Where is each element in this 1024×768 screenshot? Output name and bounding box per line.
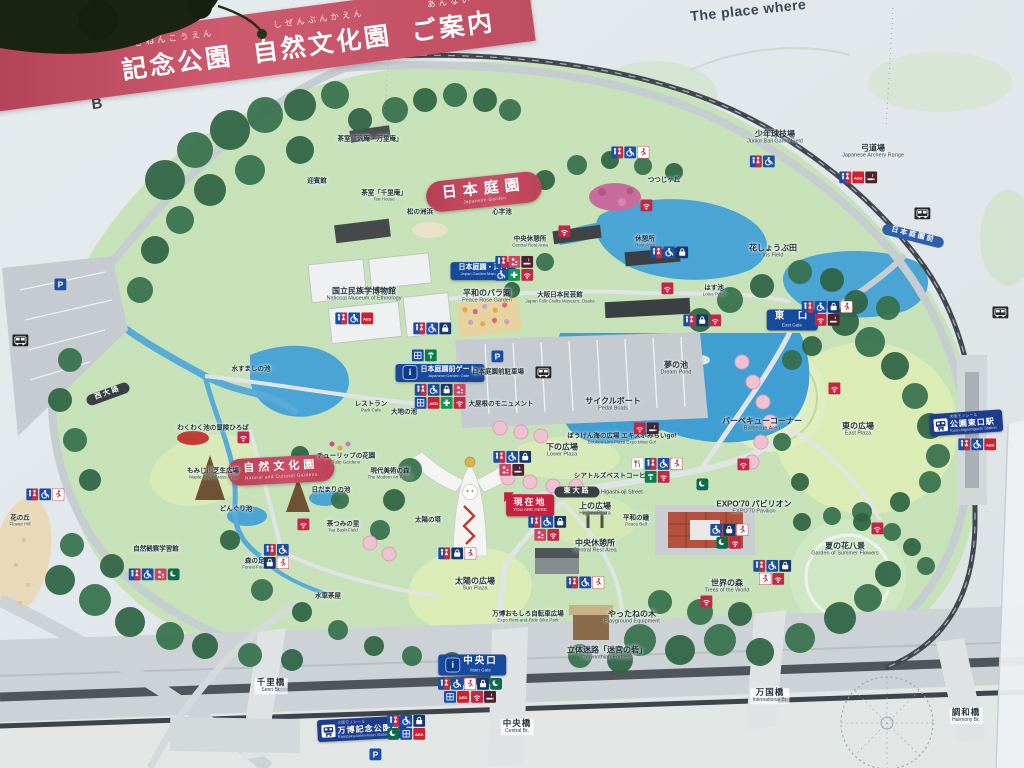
central-bridge-label: 中央橋Central Br. <box>501 719 534 735</box>
overhanging-tree-photo <box>0 0 300 70</box>
wifi-icon <box>236 430 249 443</box>
locker-icon <box>444 691 456 703</box>
nishi-oji-street-label: 西大路 <box>85 381 131 407</box>
wc-icon <box>26 488 38 500</box>
wc-icon <box>128 568 140 580</box>
wifi-icon <box>700 595 712 607</box>
east-plaza-label: 東の広場East Plaza <box>842 421 874 437</box>
run-icon <box>637 146 649 158</box>
wifi-icon <box>661 282 673 294</box>
sun-plaza-label: 太陽の広場Sun Plaza <box>455 576 495 592</box>
bag-icon <box>554 515 566 527</box>
smoke-icon <box>865 171 877 183</box>
svg-text:AED: AED <box>429 401 438 406</box>
wifi-icon <box>521 269 533 281</box>
hc-icon <box>971 438 983 450</box>
hc-icon <box>277 543 289 555</box>
hc-icon <box>814 300 826 312</box>
facility-icon-cluster: AED <box>838 170 878 183</box>
wc-icon <box>414 383 426 395</box>
moon-icon <box>716 537 728 549</box>
tea-bush-field-label: 茶つみの里Tea Bush Field <box>327 521 360 534</box>
bus-icon <box>991 305 1008 318</box>
bus-icon <box>913 206 930 219</box>
mizusumashi-pond-label: 水すましの池 <box>232 365 271 372</box>
international-bridge-label: 万国橋International Br. <box>750 688 789 704</box>
harmony-bridge-label: 調和橋Harmony Br. <box>950 708 983 724</box>
p-icon: P <box>491 350 503 362</box>
bus-icon <box>992 306 1008 318</box>
smoke-icon <box>647 422 659 434</box>
nature-observation-label: 自然観察学習館 <box>133 545 179 552</box>
peace-bell-label: 平和の鐘Peace Bell <box>623 515 649 528</box>
bag-icon <box>828 300 840 312</box>
hc-icon <box>495 269 507 281</box>
higher-plaza-label: 上の広場Higher Plaza <box>579 501 611 517</box>
aed-icon: AED <box>984 438 996 450</box>
hc-icon <box>766 559 778 571</box>
bus-icon <box>535 366 551 378</box>
jg-central-rest-label: 中央休憩所Central Rest Area <box>512 236 548 249</box>
facility-icon-cluster: AED <box>386 714 426 740</box>
facility-icon-cluster <box>494 255 534 281</box>
flower-hill-label: 花の丘Flower Hill <box>9 515 30 528</box>
map-labels-layer: BCD日本庭園Japanese Garden自然文化園Natural and C… <box>0 0 1024 768</box>
cross-icon <box>441 397 453 409</box>
hc-icon <box>506 450 518 462</box>
svg-text:AED: AED <box>986 442 995 447</box>
wc-icon <box>749 155 761 167</box>
phone-icon <box>644 471 656 483</box>
wc-icon <box>263 543 275 555</box>
smoke-icon <box>484 691 496 703</box>
locker-icon <box>414 397 426 409</box>
bus-icon <box>914 207 930 219</box>
ethnology-museum-label: 国立民族学博物館National Museum of Ethnology <box>327 286 402 302</box>
hc-icon <box>710 523 722 535</box>
p-icon: P <box>53 277 66 290</box>
bag-icon <box>519 450 531 462</box>
run-icon <box>671 457 683 469</box>
wc-icon <box>438 677 450 689</box>
aed-icon: AED <box>457 691 469 703</box>
bike-park-label: 万博おもしろ自転車広場Expo Rent-and-Ride Bike Park <box>492 611 564 624</box>
bag-icon <box>696 314 708 326</box>
facility-icon-cluster <box>128 567 181 580</box>
hc-icon <box>141 568 153 580</box>
p-icon: P <box>490 349 503 362</box>
hc-icon <box>663 246 675 258</box>
bus-icon <box>534 365 551 378</box>
roof-monument-label: 大屋根のモニュメント <box>469 400 534 407</box>
wifi-icon <box>709 314 721 326</box>
facility-icon-cluster <box>682 313 722 326</box>
you-are-here-badge: 現在地YOU ARE HERE <box>506 494 554 516</box>
aed-icon: AED <box>852 171 864 183</box>
aed-icon: AED <box>361 312 373 324</box>
bag-icon <box>451 547 463 559</box>
p-icon: P <box>369 748 381 760</box>
svg-text:P: P <box>494 351 500 361</box>
wifi-icon <box>828 382 840 394</box>
run-icon <box>52 488 64 500</box>
facility-icon-cluster <box>709 523 749 549</box>
facility-icon-cluster <box>263 543 289 569</box>
modern-art-forest-label: 現代美術の森The Modern Art Forest <box>367 468 412 481</box>
wc-icon <box>413 322 425 334</box>
wc-icon <box>438 547 450 559</box>
aed-icon: AED <box>413 728 425 740</box>
monorail-icon <box>321 725 334 738</box>
aed-icon: AED <box>427 397 439 409</box>
facility-icon-cluster: AED <box>957 437 997 450</box>
junior-ball-field-label: 少年球技場Junior Ball Game Field <box>747 129 803 145</box>
hc-icon <box>624 146 636 158</box>
smoke-icon <box>828 314 840 326</box>
labyrinth-label: 立体迷路「迷宮の砦」Labyrinthian Fortress <box>567 645 647 661</box>
sunny-pond-label: 日だまりの池 <box>312 486 351 493</box>
wc-icon <box>839 171 851 183</box>
wc-icon <box>753 559 765 571</box>
peace-rose-garden-label: 平和のバラ園Peace Rose Garden <box>462 288 512 304</box>
wifi-icon <box>454 397 466 409</box>
locker-icon <box>411 349 423 361</box>
hc-icon <box>426 322 438 334</box>
lotus-pond-label: はす池Lotus Pond <box>703 285 726 298</box>
p-icon: P <box>368 747 381 760</box>
pedal-boats-label: サイクルボートPedal Boats <box>585 396 641 412</box>
info-icon: i <box>446 658 459 671</box>
wifi-icon <box>736 457 749 470</box>
smoke-icon <box>521 255 533 267</box>
yattane-tree-label: やったねの木Playground Equipment <box>604 609 660 625</box>
bag-icon <box>779 559 791 571</box>
wifi-icon <box>730 537 742 549</box>
facility-icon-cluster <box>25 487 65 500</box>
cross-icon <box>508 269 520 281</box>
maple-river-grass-label: もみじ川芝生広場Maple River Grass Area <box>187 468 239 481</box>
svg-text:AED: AED <box>363 316 372 321</box>
wifi-icon <box>548 529 560 541</box>
nurse-icon <box>454 383 466 395</box>
wifi-icon <box>558 225 570 237</box>
svg-text:P: P <box>57 279 63 289</box>
moon-icon <box>387 728 399 740</box>
bouken-umi-plaza-label: ぼうけん海の広場 エキスポみらいgo!Bouken-Umi Plaza Expo… <box>567 433 676 446</box>
food-icon <box>631 457 643 469</box>
hc-icon <box>39 488 51 500</box>
wifi-icon <box>737 458 749 470</box>
bus-icon <box>12 334 28 346</box>
run-icon <box>592 576 604 588</box>
p-icon: P <box>54 278 66 290</box>
barbecue-area-label: バーベキューコーナーBarbecue Area <box>722 416 802 432</box>
wifi-icon <box>296 517 309 530</box>
wifi-icon <box>871 522 883 534</box>
wifi-icon <box>658 471 670 483</box>
wc-icon <box>644 457 656 469</box>
central-rest-area-label: 中央休憩所Central Rest Area <box>573 538 616 554</box>
dream-pond-label: 夢の池Dream Pond <box>661 360 692 376</box>
wc-icon <box>387 714 399 726</box>
acorn-pond-label: どんぐり池 <box>220 505 253 512</box>
jg-parking-label: 日本庭園前駐車場 <box>472 368 524 375</box>
wc-icon <box>611 146 623 158</box>
run-icon <box>464 547 476 559</box>
facility-icon-cluster <box>633 421 659 434</box>
wc-icon <box>528 515 540 527</box>
folk-crafts-museum-label: 大阪日本民芸館Japan Folk Crafts Museum, Osaka <box>525 292 594 305</box>
facility-icon-cluster <box>649 245 689 258</box>
monorail-icon <box>933 418 946 431</box>
archery-range-label: 弓道場Japanese Archery Range <box>842 143 904 159</box>
hc-icon <box>541 515 553 527</box>
wc-icon <box>683 314 695 326</box>
wifi-icon <box>660 281 673 294</box>
facility-icon-cluster <box>527 515 567 541</box>
park-map-photo: BCD日本庭園Japanese Garden自然文化園Natural and C… <box>0 0 1024 768</box>
bag-icon <box>477 677 489 689</box>
tulip-gardens-label: チューリップの花園Tulip Gardens <box>317 453 376 466</box>
wc-icon <box>495 255 507 267</box>
expo70-pavilion-label: EXPO'70 パビリオンEXPO'70 Pavilion <box>716 499 791 515</box>
hc-icon <box>763 155 775 167</box>
nurse-icon <box>534 529 546 541</box>
wifi-icon <box>237 431 249 443</box>
bag-icon <box>263 557 275 569</box>
wifi-icon <box>557 224 570 237</box>
japanese-garden-badge: 日本庭園Japanese Garden <box>425 170 544 213</box>
run-icon <box>736 523 748 535</box>
moon-icon <box>168 568 180 580</box>
wifi-icon <box>640 199 652 211</box>
nurse-icon <box>155 568 167 580</box>
wc-icon <box>335 312 347 324</box>
nurse-icon <box>508 255 520 267</box>
higashi-oji-street-label: 東大路Higashi-oji Street <box>555 486 600 497</box>
wifi-icon <box>699 594 712 607</box>
facility-icon-cluster <box>801 300 854 326</box>
pine-beach-label: 松の洲浜 <box>407 208 433 215</box>
park-cafe-label: レストランPark Cafe <box>355 401 388 414</box>
bag-icon <box>676 246 688 258</box>
iris-field-label: 花しょうぶ田Iris Field <box>749 243 797 259</box>
info-icon: i <box>404 366 417 379</box>
run-icon <box>277 557 289 569</box>
wifi-icon <box>633 422 645 434</box>
facility-icon-cluster <box>631 457 684 483</box>
tearoom-hanan-banrian-label: 茶室「汎庵・万里庵」 <box>338 135 403 142</box>
svg-text:AED: AED <box>854 175 863 180</box>
locker-icon <box>400 728 412 740</box>
wc-icon <box>566 576 578 588</box>
wifi-icon <box>639 198 652 211</box>
svg-text:P: P <box>372 749 378 759</box>
facility-icon-cluster <box>412 321 452 334</box>
facility-icon-cluster: AED <box>414 383 467 409</box>
run-icon <box>841 300 853 312</box>
banner-part-guide: あんない ご案内 <box>407 0 497 49</box>
wc-icon <box>650 246 662 258</box>
hc-icon <box>348 312 360 324</box>
senri-bridge-label: 千里橋Senri Br. <box>255 678 288 694</box>
wc-icon <box>493 450 505 462</box>
svg-text:AED: AED <box>415 732 424 737</box>
bag-icon <box>723 523 735 535</box>
moon-icon <box>696 478 708 490</box>
wifi-icon <box>773 573 785 585</box>
geihinkan-label: 迎賓館 <box>307 177 327 184</box>
bag-icon <box>441 383 453 395</box>
facility-icon-cluster <box>749 154 775 167</box>
trees-of-world-label: 世界の森Trees of the World <box>705 578 750 594</box>
wc-icon <box>801 300 813 312</box>
svg-text:AED: AED <box>459 695 468 700</box>
hc-icon <box>400 714 412 726</box>
moon-icon <box>695 477 708 490</box>
facility-icon-cluster <box>492 450 532 476</box>
phone-icon <box>425 349 437 361</box>
wifi-icon <box>870 521 883 534</box>
hc-icon <box>427 383 439 395</box>
facility-icon-cluster <box>565 575 605 588</box>
bag-icon <box>439 322 451 334</box>
facility-icon-cluster <box>411 348 437 361</box>
run-icon <box>464 677 476 689</box>
bus-icon <box>11 333 28 346</box>
run-icon <box>759 573 771 585</box>
wifi-icon <box>827 381 840 394</box>
facility-icon-cluster <box>752 559 792 585</box>
smoke-icon <box>513 464 525 476</box>
facility-icon-cluster <box>610 145 650 158</box>
nurse-icon <box>499 464 511 476</box>
hc-icon <box>579 576 591 588</box>
shinji-pond-label: 心字池 <box>492 208 512 215</box>
tearoom-senrian-label: 茶室「千里庵」Tea House <box>361 190 407 203</box>
nihon-teien-mae-busstop-label: 日本庭園前 <box>881 223 945 249</box>
tower-of-the-sun-label: 太陽の塔 <box>415 516 441 523</box>
tsutsuji-hill-label: つつじヶ丘 <box>648 176 681 183</box>
wifi-icon <box>471 691 483 703</box>
daichi-pond-label: 大地の池 <box>391 408 417 415</box>
hc-icon <box>451 677 463 689</box>
summer-flowers-label: 夏の花八景Garden of Summer Flowers <box>811 541 879 557</box>
waterwheel-teahouse-label: 水車茶屋 <box>315 592 341 599</box>
facility-icon-cluster: AED <box>437 677 503 703</box>
facility-icon-cluster: AED <box>334 311 374 324</box>
main-gate-label: i中央口Main Gate <box>438 654 506 675</box>
hc-icon <box>658 457 670 469</box>
wifi-icon <box>297 518 309 530</box>
facility-icon-cluster <box>437 546 477 559</box>
koen-higashiguchi-station-label: 大阪モノレール公園東口駅Koen-higashiguchi Station <box>929 409 1003 436</box>
wc-icon <box>958 438 970 450</box>
wifi-icon <box>814 314 826 326</box>
bag-icon <box>413 714 425 726</box>
moon-icon <box>490 677 502 689</box>
